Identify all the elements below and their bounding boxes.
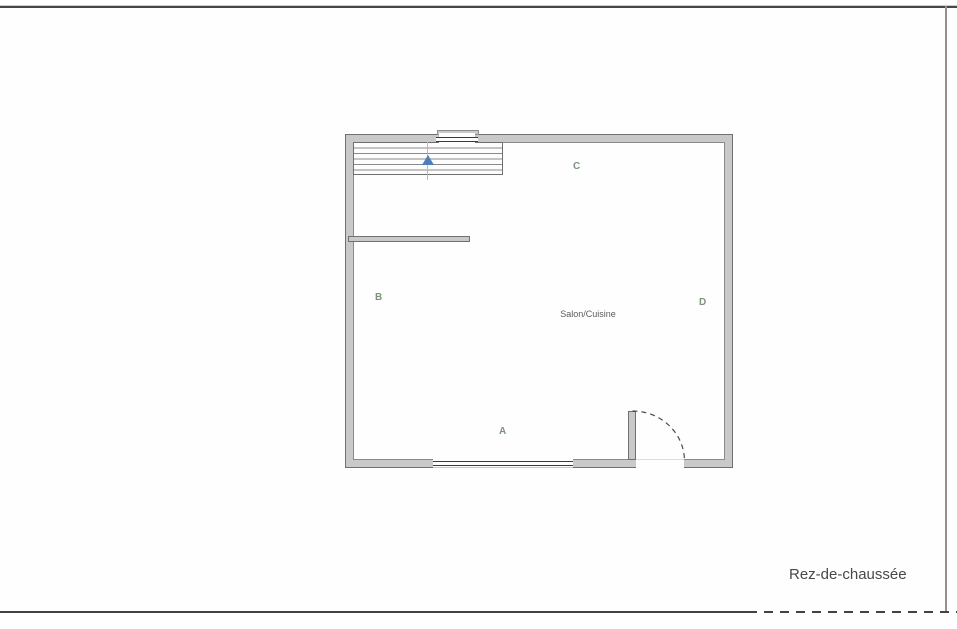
door-jamb-wall bbox=[628, 411, 636, 460]
wall-marker-b: B bbox=[375, 292, 383, 303]
frame-top-line bbox=[0, 6, 957, 8]
window-bottom-sill bbox=[433, 467, 573, 468]
floor-title: Rez-de-chaussée bbox=[789, 566, 907, 583]
wall-marker-a: A bbox=[499, 426, 507, 437]
frame-bottom-line bbox=[0, 611, 748, 613]
door-opening bbox=[636, 459, 684, 469]
wall-marker-c: C bbox=[573, 161, 581, 172]
window-top-glass bbox=[436, 137, 478, 142]
wall-marker-d: D bbox=[699, 297, 707, 308]
floor-plan-page: A B C D Salon/Cuisine Rez-de-chaussée bbox=[0, 0, 957, 629]
door-threshold-line bbox=[636, 459, 684, 460]
interior-wall-stub bbox=[348, 236, 470, 242]
frame-right-line bbox=[945, 6, 947, 612]
room-label: Salon/Cuisine bbox=[548, 309, 628, 319]
stair-direction-arrow-icon bbox=[422, 155, 434, 165]
window-bottom-glass bbox=[433, 461, 573, 466]
room-floor-area bbox=[353, 142, 725, 460]
